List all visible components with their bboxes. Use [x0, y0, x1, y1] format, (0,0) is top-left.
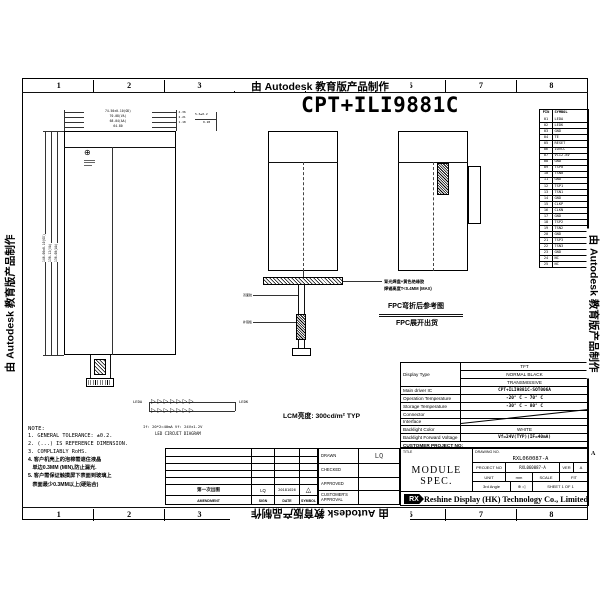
pin-symbol: TSP1: [553, 184, 588, 189]
revision-date: 20181026: [275, 485, 300, 495]
title-label: TITLE: [403, 450, 412, 454]
spec-label: Storage Temperature: [401, 403, 461, 410]
revision-empty-row: [166, 456, 317, 463]
pin-symbol: GND: [553, 214, 588, 219]
approval-value: [359, 478, 399, 491]
note-block: NOTE: 1. GENERAL TOLERANCE: ±0.2.2. (...…: [28, 426, 170, 489]
brightness-spec: LCM亮度: 300cd/m² TYP: [283, 410, 360, 420]
autodesk-watermark-left: 由 Autodesk 教育版产品制作: [3, 229, 18, 379]
revision-empty-row: [166, 470, 317, 477]
pin-symbol: GND: [553, 196, 588, 201]
drawing-no-value: RXL060087-A: [473, 456, 588, 462]
pin-table-row: 15 CLKP: [540, 201, 588, 207]
pin-symbol: GND: [553, 129, 588, 134]
pin-number: 20: [540, 232, 553, 237]
pin-symbol: TSP3: [553, 238, 588, 243]
spec-row: Backlight Forward Voltage Vf=24V(TYP)(IF…: [401, 433, 588, 441]
symbol-header: SYMBOL: [300, 496, 317, 505]
pin-number: 22: [540, 244, 553, 249]
ver-value: A: [574, 463, 588, 472]
note-line: 3. COMPLIABLY RoHS.: [28, 448, 170, 456]
autodesk-watermark-right: 由 Autodesk 教育版产品制作: [587, 229, 600, 379]
revision-symbol-cell: △ 1: [300, 485, 317, 495]
third-angle-label: 3rd Angle: [473, 482, 511, 491]
pin-number: 17: [540, 214, 553, 219]
pin-number: 15: [540, 202, 553, 207]
pin-table-row: 21 TSP3: [540, 237, 588, 243]
pin-symbol: TE: [553, 135, 588, 140]
pin-number: 16: [540, 208, 553, 213]
logo-text-line: [84, 160, 95, 161]
dimension-label: 70.08(VA): [84, 115, 152, 118]
spec-row: Main driver IC CPT+ILI9881C-SOT006A: [401, 386, 588, 394]
led-row: ▷▷▷▷▷▷▷: [151, 408, 195, 414]
display-type-value: TFT: [461, 363, 588, 370]
dimension-label: 0.28: [203, 121, 210, 124]
fpc-tail-edge: [90, 355, 91, 379]
caption-rule: [379, 316, 463, 317]
approval-table: DRAWN LQ CHECKED APPROVED CUSTOMER'S APP…: [318, 448, 400, 505]
approval-row: CUSTOMER'S APPROVAL: [319, 490, 399, 504]
spec-value: CPT+ILI9881C-SOT006A: [461, 387, 588, 394]
pin-number: 10: [540, 172, 553, 177]
approval-row: APPROVED: [319, 477, 399, 491]
note-line: 表面最少0.3MM以上(硬贴合): [28, 481, 170, 489]
revision-header-row: AMENDMENT SIGN DATE SYMBOL: [166, 495, 317, 505]
dimension-label: 4.36: [179, 111, 186, 114]
display-type-row: Display Type TFT NORMAL BLACK TRANSMISSI…: [401, 363, 588, 386]
unit-label: UNIT: [473, 473, 506, 481]
approval-label: CUSTOMER'S APPROVAL: [319, 491, 359, 504]
spec-label: Operation Temperature: [401, 395, 461, 402]
spec-label: Interface: [401, 419, 461, 426]
fpc-tail-edge: [110, 355, 111, 379]
component-section: [437, 163, 449, 195]
pin-table-row: 24 NC: [540, 255, 588, 261]
zone-number: 2: [94, 80, 164, 93]
project-no-label: PROJECT NO: [473, 463, 506, 472]
pin-number: 14: [540, 196, 553, 201]
spec-row: Backlight Color WHITE: [401, 425, 588, 433]
pin-symbol: TSN3: [553, 244, 588, 249]
pin-symbol: GND: [553, 250, 588, 255]
note-lines-en: 1. GENERAL TOLERANCE: ±0.2.2. (...) IS R…: [28, 432, 170, 456]
title-block-right: DRAWING NO. RXL060087-A PROJECT NO RXL06…: [473, 449, 588, 491]
display-type-value: TRANSMISSIVE: [461, 378, 588, 386]
pin-symbol: TSP2: [553, 220, 588, 225]
amendment-header: AMENDMENT: [166, 496, 252, 505]
approval-label: DRAWN: [319, 449, 359, 463]
logo-text-line: [84, 165, 92, 166]
company-name: Reshine Display (HK) Technology Co., Lim…: [424, 495, 588, 504]
pin-table-row: 16 CLKN: [540, 207, 588, 213]
sheet-info: SHEET 1 OF 1: [533, 482, 588, 491]
pin-symbol: IOVCC: [553, 148, 588, 153]
pin-number: 09: [540, 166, 553, 171]
pin-number: 11: [540, 178, 553, 183]
unit-row: UNIT mm SCALE FIT: [473, 473, 588, 482]
note-lines-cn: 4. 客户机壳上的泡棉需遮住液晶 单边0.3MM (MIN),防止漏光.5. 客…: [28, 456, 170, 489]
dimension-label: 1.18: [179, 121, 186, 124]
unit-value: mm: [506, 473, 533, 481]
revision-table: 第一次出图 LQ 20181026 △ 1 AMENDMENT SIGN DAT…: [165, 448, 318, 505]
pin-table-row: 03 GND: [540, 128, 588, 134]
pin-table-row: 13 TSN1: [540, 189, 588, 195]
spec-value: [461, 419, 588, 426]
approval-row: CHECKED: [319, 463, 399, 477]
fpc-stiffener-section: [296, 314, 306, 340]
scale-value: FIT: [560, 473, 588, 481]
pin-table-row: 19 TSN2: [540, 225, 588, 231]
approval-label: APPROVED: [319, 478, 359, 491]
spec-label: Connector: [401, 411, 461, 418]
title-block: TITLE MODULE SPEC. DRAWING NO. RXL060087…: [400, 448, 589, 506]
pin-table-row: 23 GND: [540, 249, 588, 255]
pin-symbol: LEDK: [553, 123, 588, 128]
pin-symbol: GND: [553, 178, 588, 183]
spec-value: Vf=24V(TYP)(IF=40mA): [461, 434, 588, 441]
solder-note-line2: 焊锡高度T<0.4MM (MAX): [384, 286, 432, 291]
zone-row-letter: A: [591, 451, 595, 457]
spec-row: Operation Temperature -20° C ~ 70° C: [401, 394, 588, 402]
pin-number: 05: [540, 141, 553, 146]
pin-symbol: TSN2: [553, 226, 588, 231]
spec-row: Storage Temperature -30° C ~ 80° C: [401, 402, 588, 410]
drawing-title: CPT+ILI9881C: [300, 93, 460, 117]
logo-text-line: [84, 162, 95, 163]
dimension-label: 68.04(AA): [84, 120, 152, 123]
approval-row: DRAWN LQ: [319, 449, 399, 463]
revision-data-row: 第一次出图 LQ 20181026 △ 1: [166, 484, 317, 495]
connector-pins: [88, 380, 112, 385]
spec-value: -30° C ~ 80° C: [461, 403, 588, 410]
zone-number: 7: [446, 509, 516, 522]
logo-globe-icon: ⊕: [84, 148, 91, 157]
pin-symbol: TSN0: [553, 172, 588, 177]
dimension-label: 64.80: [84, 125, 152, 128]
pin-number: 23: [540, 250, 553, 255]
pin-number: 25: [540, 262, 553, 267]
pin-symbol: CLKP: [553, 202, 588, 207]
pin-number: 02: [540, 123, 553, 128]
display-type-label: Display Type: [401, 363, 461, 386]
pin-number: 24: [540, 256, 553, 261]
pin-symbol: LEDA: [553, 116, 588, 122]
note-line: 2. (...) IS REFERENCE DIMENSION.: [28, 440, 170, 448]
tape-annotation: 双面胶: [243, 294, 252, 297]
note-line: 单边0.3MM (MIN),防止漏光.: [28, 464, 170, 472]
zone-number: 7: [446, 80, 516, 93]
document-title: MODULE SPEC.: [401, 465, 472, 487]
side-view-centerline: [433, 162, 434, 271]
approval-label: CHECKED: [319, 464, 359, 477]
spec-rows: Main driver IC CPT+ILI9881C-SOT006A Oper…: [401, 386, 588, 441]
pin-number: 21: [540, 238, 553, 243]
zone-number: 3: [165, 80, 235, 93]
autodesk-watermark-bottom: 由 Autodesk 教育版产品制作: [230, 509, 410, 521]
pin-number: 03: [540, 129, 553, 134]
pin-table-row: 20 GND: [540, 231, 588, 237]
pin-table-row: 10 TSN0: [540, 171, 588, 177]
spec-label: Main driver IC: [401, 387, 461, 394]
dimension-label: 138.12(VA): [49, 243, 52, 262]
project-no-value: RXL060087-A: [506, 463, 560, 472]
pin-table-rows: 01 LEDA 02 LEDK 03 GND 04 TE 05 RESET 06…: [540, 116, 588, 267]
revision-empty-row: [166, 463, 317, 470]
fpc-flat-outline: [468, 166, 481, 224]
fpc-bent-caption: FPC弯折后参考图: [388, 301, 444, 311]
approval-value: LQ: [359, 449, 399, 463]
revision-empty-row: [166, 477, 317, 484]
company-logo: RX: [404, 494, 424, 504]
pin-number: 13: [540, 190, 553, 195]
pin-table-row: 07 VCI2.8V: [540, 153, 588, 159]
note-line: 5. 客户需保证触摸屏下表面到玻璃上: [28, 472, 170, 480]
dimension-label: 136.08(AA): [55, 243, 58, 262]
title-cell: TITLE MODULE SPEC.: [401, 449, 473, 491]
revision-empty-row: [166, 449, 317, 456]
pin-number: 08: [540, 160, 553, 165]
pin-table-row: 06 IOVCC: [540, 147, 588, 153]
pin-symbol: GND: [553, 232, 588, 237]
note-line: 1. GENERAL TOLERANCE: ±0.2.: [28, 432, 170, 440]
front-view-bezel-line: [64, 147, 176, 148]
ver-label: VER: [560, 463, 574, 472]
third-angle-icon: ⊕ ◁: [511, 482, 533, 491]
fpc-connector: [86, 378, 114, 387]
dimension-label: 5.6±0.2: [195, 113, 208, 116]
approval-value: [359, 464, 399, 477]
pin-table-row: 11 GND: [540, 177, 588, 183]
pin-table-row: 09 TSP0: [540, 165, 588, 171]
solder-note-line1: 背光焊盘+黄色绝缘胶: [384, 279, 424, 284]
pin-table-row: 02 LEDK: [540, 122, 588, 128]
pin-number: 12: [540, 184, 553, 189]
led-row: ▷▷▷▷▷▷▷: [151, 399, 195, 405]
pin-number: 18: [540, 220, 553, 225]
pin-table-row: 14 GND: [540, 195, 588, 201]
projection-row: 3rd Angle ⊕ ◁ SHEET 1 OF 1: [473, 482, 588, 491]
scale-label: SCALE: [533, 473, 560, 481]
pin-table-row: 25 NC: [540, 261, 588, 267]
pin-number: 19: [540, 226, 553, 231]
rear-view-centerline: [303, 162, 304, 271]
pin-table-row: 17 GND: [540, 213, 588, 219]
pin-table-row: 08 GND: [540, 159, 588, 165]
pin-table-row: 22 TSN3: [540, 243, 588, 249]
pin-table-row: 04 TE: [540, 134, 588, 140]
pin-number: 07: [540, 154, 553, 159]
spec-label: Backlight Color: [401, 426, 461, 433]
autodesk-watermark-top: 由 Autodesk 教育版产品制作: [230, 79, 410, 91]
pin-symbol: RESET: [553, 141, 588, 146]
bent-fpc-connector: [292, 348, 311, 356]
pin-table-row: 12 TSP1: [540, 183, 588, 189]
pin-symbol: GND: [553, 160, 588, 165]
fpc-flat-caption: FPC展开出货: [396, 318, 438, 328]
zone-number: 8: [517, 80, 586, 93]
spec-value: -20° C ~ 70° C: [461, 395, 588, 402]
leda-label: LEDA: [133, 399, 142, 404]
sign-header: SIGN: [252, 496, 275, 505]
caption-rule: [379, 314, 463, 315]
spec-label: Backlight Forward Voltage: [401, 434, 461, 441]
front-view-outline: [64, 131, 176, 355]
zone-number: 8: [517, 509, 586, 522]
drawing-no-row: DRAWING NO. RXL060087-A: [473, 449, 588, 463]
date-header: DATE: [275, 496, 300, 505]
zone-number: 1: [24, 80, 94, 93]
drawing-no-label: DRAWING NO.: [475, 450, 500, 454]
pin-number: 04: [540, 135, 553, 140]
pin-symbol: TSN1: [553, 190, 588, 195]
company-bar: RX Reshine Display (HK) Technology Co., …: [401, 491, 588, 506]
spec-table: Display Type TFT NORMAL BLACK TRANSMISSI…: [400, 362, 589, 448]
spec-value: WHITE: [461, 426, 588, 433]
zone-number: 2: [94, 509, 164, 522]
revision-amendment: 第一次出图: [166, 485, 252, 495]
pin-symbol: NC: [553, 262, 588, 267]
pin-symbol: CLKN: [553, 208, 588, 213]
display-type-value: NORMAL BLACK: [461, 370, 588, 378]
pin-table-row: 18 TSP2: [540, 219, 588, 225]
project-no-row: PROJECT NO RXL060087-A VER A: [473, 463, 588, 473]
fpc-tail-stiffener: [94, 359, 106, 375]
approval-value: [359, 491, 399, 504]
dimension-label: 2.21: [179, 116, 186, 119]
pin-symbol: TSP0: [553, 166, 588, 171]
pin-table-row: 01 LEDA: [540, 116, 588, 122]
glass-edge-section: [263, 277, 343, 285]
drawing-sheet: 12345678 12345678 A 由 Autodesk 教育版产品制作 由…: [0, 0, 600, 600]
dimension-label: 146.06±0.10(OD): [43, 234, 46, 262]
pin-table-row: 05 RESET: [540, 140, 588, 146]
ledk-label: LEDK: [239, 399, 248, 404]
note-line: 4. 客户机壳上的泡棉需遮住液晶: [28, 456, 170, 464]
revision-sign: LQ: [252, 485, 275, 495]
zone-number: 3: [165, 509, 235, 522]
pin-symbol: VCI2.8V: [553, 154, 588, 159]
pin-number: 01: [540, 116, 553, 122]
pin-number: 06: [540, 148, 553, 153]
dimension-label: 74.50±0.10(OD): [84, 110, 152, 113]
spec-row: Connector: [401, 410, 588, 418]
pin-table: PIN SYMBOL 01 LEDA 02 LEDK 03 GND 04 TE …: [539, 109, 589, 268]
zone-number: 1: [24, 509, 94, 522]
stiffener-annotation: 补强板: [243, 321, 252, 324]
pin-symbol: NC: [553, 256, 588, 261]
